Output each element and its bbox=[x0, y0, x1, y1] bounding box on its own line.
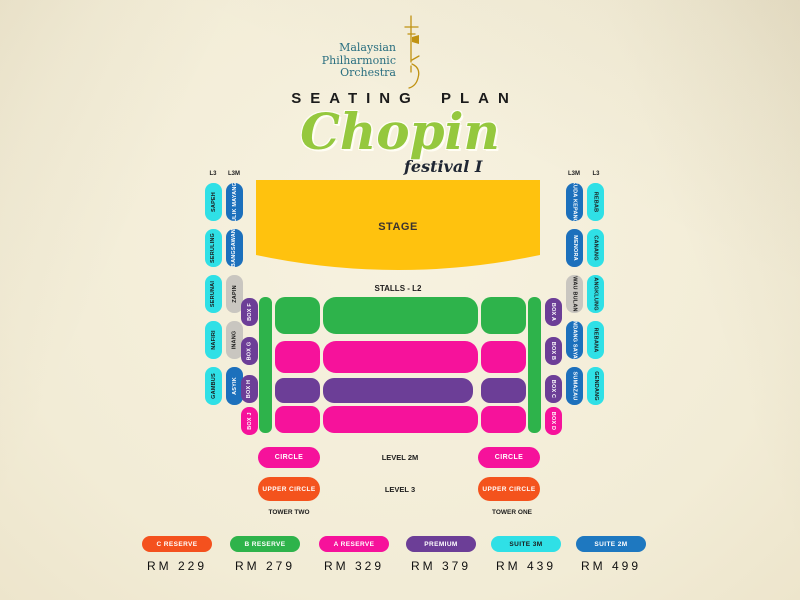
right-l3m-header: L3M bbox=[565, 171, 583, 177]
c-reserve-pill: C RESERVE bbox=[142, 536, 212, 552]
stalls-side-bar-right bbox=[528, 297, 541, 433]
stalls-row1-center bbox=[323, 297, 478, 334]
upper-circle-right-pill: UPPER CIRCLE bbox=[478, 477, 540, 501]
legend-item-suite-3m: SUITE 3M RM 439 bbox=[481, 536, 571, 573]
stalls-row4-right bbox=[481, 406, 526, 433]
legend-item-premium: PREMIUM RM 379 bbox=[396, 536, 486, 573]
premium-price: RM 379 bbox=[396, 559, 486, 573]
premium-pill: PREMIUM bbox=[406, 536, 476, 552]
box-f: BOX F bbox=[241, 298, 258, 326]
right-l3-header: L3 bbox=[587, 171, 605, 177]
box-j: BOX J bbox=[241, 407, 258, 435]
a-reserve-price: RM 329 bbox=[309, 559, 399, 573]
suite-serunai: SERUNAI bbox=[205, 275, 222, 313]
suite-dondang-sayang: DONDANG SAYANG bbox=[566, 321, 583, 359]
suite-rebana: REBANA bbox=[587, 321, 604, 359]
box-c: BOX C bbox=[545, 375, 562, 403]
circle-right-pill: CIRCLE bbox=[478, 447, 540, 468]
stalls-row2-right bbox=[481, 341, 526, 373]
box-g: BOX G bbox=[241, 337, 258, 365]
suite-ulik-mayang: ULIK MAYANG bbox=[226, 183, 243, 221]
stalls-row2-left bbox=[275, 341, 320, 373]
stalls-row1-left bbox=[275, 297, 320, 334]
level-3-label: LEVEL 3 bbox=[340, 485, 460, 494]
stalls-row3-left bbox=[275, 378, 320, 403]
stalls-row3-right bbox=[481, 378, 526, 403]
box-a: BOX A bbox=[545, 298, 562, 326]
suite-kuda-kepang: KUDA KEPANG bbox=[566, 183, 583, 221]
box-b: BOX B bbox=[545, 337, 562, 365]
box-d: BOX D bbox=[545, 407, 562, 435]
upper-circle-left-pill: UPPER CIRCLE bbox=[258, 477, 320, 501]
stalls-side-bar-left bbox=[259, 297, 272, 433]
logo-line-3: Orchestra bbox=[296, 67, 396, 80]
stalls-row2-center bbox=[323, 341, 478, 373]
legend-item-b-reserve: B RESERVE RM 279 bbox=[220, 536, 310, 573]
suite-canang: CANANG bbox=[587, 229, 604, 267]
left-l3m-header: L3M bbox=[225, 171, 243, 177]
suite-wau-bulan: WAU BULAN bbox=[566, 275, 583, 313]
stalls-row4-left bbox=[275, 406, 320, 433]
suite-gambus: GAMBUS bbox=[205, 367, 222, 405]
tower-two-label: TOWER TWO bbox=[249, 509, 329, 516]
logo-line-1: Malaysian bbox=[296, 42, 396, 55]
level-2m-label: LEVEL 2M bbox=[340, 453, 460, 462]
suite-bangsawan: BANGSAWAN bbox=[226, 229, 243, 267]
suite-nafiri: NAFIRI bbox=[205, 321, 222, 359]
stage-shape bbox=[255, 180, 541, 286]
suite-2m-price: RM 499 bbox=[566, 559, 656, 573]
stalls-row4-center bbox=[323, 406, 478, 433]
b-reserve-price: RM 279 bbox=[220, 559, 310, 573]
event-edition: festival I bbox=[404, 157, 482, 176]
left-l3-header: L3 bbox=[204, 171, 222, 177]
suite-rebab: REBAB bbox=[587, 183, 604, 221]
stalls-label: STALLS - L2 bbox=[255, 284, 541, 293]
suite-menora: MENORA bbox=[566, 229, 583, 267]
stalls-row1-right bbox=[481, 297, 526, 334]
suite-sumazau: SUMAZAU bbox=[566, 367, 583, 405]
legend-item-suite-2m: SUITE 2M RM 499 bbox=[566, 536, 656, 573]
stalls-row3-center bbox=[323, 378, 473, 403]
suite-angklung: ANGKLUNG bbox=[587, 275, 604, 313]
b-reserve-pill: B RESERVE bbox=[230, 536, 300, 552]
suite-3m-price: RM 439 bbox=[481, 559, 571, 573]
conductor-baton-icon bbox=[399, 14, 425, 90]
suite-gendang: GENDANG bbox=[587, 367, 604, 405]
suite-seruling: SERULING bbox=[205, 229, 222, 267]
a-reserve-pill: A RESERVE bbox=[319, 536, 389, 552]
c-reserve-price: RM 229 bbox=[132, 559, 222, 573]
stage-label: STAGE bbox=[255, 221, 541, 233]
legend-item-c-reserve: C RESERVE RM 229 bbox=[132, 536, 222, 573]
seating-plan-poster: Malaysian Philharmonic Orchestra SEATING… bbox=[0, 0, 800, 600]
suite-2m-pill: SUITE 2M bbox=[576, 536, 646, 552]
legend-item-a-reserve: A RESERVE RM 329 bbox=[309, 536, 399, 573]
suite-sapeh: SAPEH bbox=[205, 183, 222, 221]
circle-left-pill: CIRCLE bbox=[258, 447, 320, 468]
tower-one-label: TOWER ONE bbox=[472, 509, 552, 516]
orchestra-logo-text: Malaysian Philharmonic Orchestra bbox=[296, 42, 396, 80]
event-name: Chopin bbox=[0, 102, 800, 161]
suite-3m-pill: SUITE 3M bbox=[491, 536, 561, 552]
box-h: BOX H bbox=[241, 375, 258, 403]
